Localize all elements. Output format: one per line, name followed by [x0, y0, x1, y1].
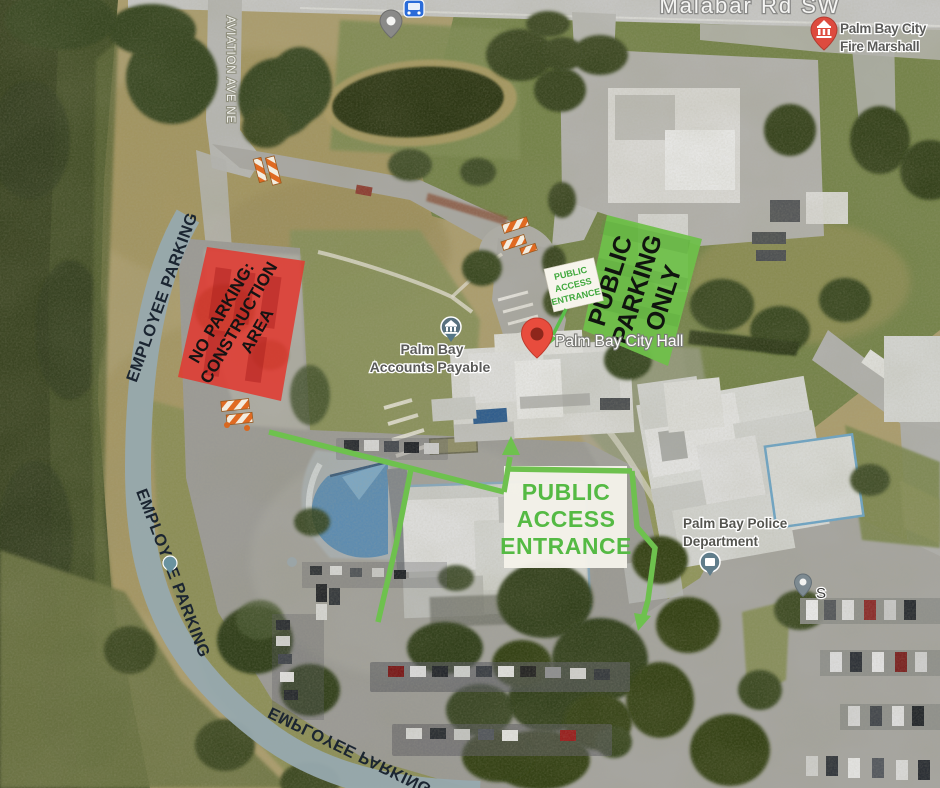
svg-text:Palm Bay City Hall: Palm Bay City Hall: [555, 333, 683, 350]
svg-text:Accounts Payable: Accounts Payable: [370, 359, 491, 375]
svg-text:ACCESS: ACCESS: [517, 506, 616, 532]
svg-text:Palm Bay: Palm Bay: [400, 341, 463, 357]
svg-text:S: S: [816, 585, 826, 602]
svg-text:AVIATION AVE NE: AVIATION AVE NE: [224, 16, 236, 124]
svg-text:Department: Department: [683, 534, 759, 549]
svg-text:Fire Marshall: Fire Marshall: [840, 39, 919, 54]
svg-text:PUBLIC: PUBLIC: [522, 479, 611, 505]
svg-text:ENTRANCE: ENTRANCE: [500, 533, 632, 559]
svg-text:Malabar Rd SW: Malabar Rd SW: [659, 0, 840, 18]
svg-text:Palm Bay City: Palm Bay City: [840, 21, 927, 36]
svg-text:Palm Bay Police: Palm Bay Police: [683, 516, 788, 531]
